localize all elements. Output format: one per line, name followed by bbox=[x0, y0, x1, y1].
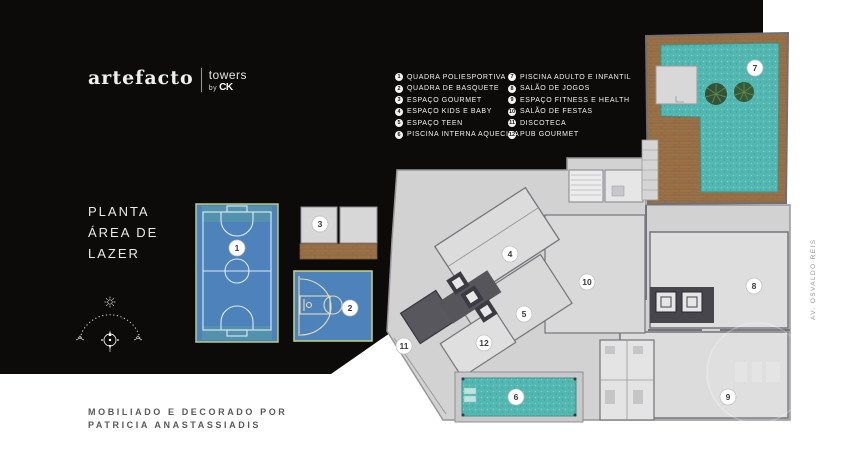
legend-item: 7PISCINA ADULTO E INFANTIL bbox=[508, 73, 631, 81]
pool-7-area bbox=[642, 33, 788, 204]
plan-marker-9: 9 bbox=[720, 389, 736, 405]
legend-item: 1QUADRA POLIESPORTIVA bbox=[395, 73, 519, 81]
plan-marker-4: 4 bbox=[502, 246, 518, 262]
legend-item: 3ESPAÇO GOURMET bbox=[395, 96, 519, 104]
legend-item: 8SALÃO DE JOGOS bbox=[508, 85, 631, 93]
legend-label: PISCINA INTERNA AQUECIDA bbox=[407, 131, 519, 138]
svg-text:2: 2 bbox=[348, 303, 353, 313]
legend-number-badge: 1 bbox=[395, 73, 403, 81]
legend-label: ESPAÇO FITNESS E HEALTH bbox=[520, 97, 630, 104]
svg-text:5: 5 bbox=[522, 309, 527, 319]
legend-item: 6PISCINA INTERNA AQUECIDA bbox=[395, 131, 519, 139]
legend-number-badge: 9 bbox=[508, 96, 516, 104]
designer-credit: MOBILIADO E DECORADO POR PATRICIA ANASTA… bbox=[88, 406, 287, 432]
plan-marker-1: 1 bbox=[229, 240, 245, 256]
ck-logo: CK bbox=[219, 82, 232, 93]
legend-item: 4ESPAÇO KIDS E BABY bbox=[395, 108, 519, 116]
legend-item: 12PUB GOURMET bbox=[508, 131, 631, 139]
brand-logo: artefacto towers byCK bbox=[88, 68, 247, 94]
legend-item: 2QUADRA DE BASQUETE bbox=[395, 85, 519, 93]
svg-text:7: 7 bbox=[753, 63, 758, 73]
plan-marker-11: 11 bbox=[396, 338, 412, 354]
legend-number-badge: 7 bbox=[508, 73, 516, 81]
brand-name: artefacto bbox=[88, 68, 194, 88]
legend-item: 11DISCOTECA bbox=[508, 119, 631, 127]
legend-label: SALÃO DE JOGOS bbox=[520, 85, 590, 92]
legend-label: ESPAÇO GOURMET bbox=[407, 97, 482, 104]
legend-item: 5ESPAÇO TEEN bbox=[395, 119, 519, 127]
plan-marker-3: 3 bbox=[312, 216, 328, 232]
legend-number-badge: 4 bbox=[395, 108, 403, 116]
plan-marker-12: 12 bbox=[476, 335, 492, 351]
svg-text:4: 4 bbox=[508, 249, 513, 259]
legend-label: QUADRA DE BASQUETE bbox=[407, 85, 499, 92]
pool-7-cabana bbox=[656, 66, 697, 104]
page-title: PLANTA ÁREA DE LAZER bbox=[88, 201, 158, 264]
legend-number-badge: 11 bbox=[508, 119, 516, 127]
legend-number-badge: 3 bbox=[395, 96, 403, 104]
svg-text:1: 1 bbox=[235, 243, 240, 253]
compass-rose-icon bbox=[72, 292, 150, 354]
svg-text:12: 12 bbox=[479, 338, 489, 348]
logo-divider bbox=[201, 68, 202, 92]
watermark bbox=[707, 323, 807, 423]
legend-number-badge: 5 bbox=[395, 119, 403, 127]
plan-marker-10: 10 bbox=[579, 274, 595, 290]
legend-number-badge: 8 bbox=[508, 85, 516, 93]
plan-marker-6: 6 bbox=[508, 389, 524, 405]
legend-column-1: 1QUADRA POLIESPORTIVA2QUADRA DE BASQUETE… bbox=[395, 73, 519, 139]
legend-item: 10SALÃO DE FESTAS bbox=[508, 108, 631, 116]
court-1-poliesportiva bbox=[196, 204, 278, 342]
legend-label: PISCINA ADULTO E INFANTIL bbox=[520, 74, 631, 81]
elevator-core-right bbox=[650, 287, 714, 323]
street-label: AV. OSVALDO REIS bbox=[810, 224, 817, 320]
svg-text:10: 10 bbox=[582, 277, 592, 287]
legend-number-badge: 12 bbox=[508, 131, 516, 139]
legend-number-badge: 2 bbox=[395, 85, 403, 93]
plan-marker-8: 8 bbox=[746, 278, 762, 294]
svg-text:9: 9 bbox=[726, 392, 731, 402]
legend-label: SALÃO DE FESTAS bbox=[520, 108, 593, 115]
court-2-basquete bbox=[294, 271, 372, 341]
brand-by: by bbox=[209, 85, 217, 92]
legend-label: PUB GOURMET bbox=[520, 131, 579, 138]
svg-text:11: 11 bbox=[400, 341, 409, 351]
svg-text:6: 6 bbox=[514, 392, 519, 402]
bathroom-block bbox=[600, 340, 654, 420]
room-salao-festas bbox=[545, 215, 645, 333]
legend-number-badge: 6 bbox=[395, 131, 403, 139]
plan-marker-5: 5 bbox=[516, 306, 532, 322]
legend-label: QUADRA POLIESPORTIVA bbox=[407, 74, 506, 81]
floor-plan-poster: 123456789101112 artefacto towers byCK PL… bbox=[0, 0, 850, 450]
palm-tree-icon bbox=[734, 82, 754, 102]
svg-text:8: 8 bbox=[752, 281, 757, 291]
legend-label: DISCOTECA bbox=[520, 120, 566, 127]
legend-number-badge: 10 bbox=[508, 108, 516, 116]
legend-label: ESPAÇO KIDS E BABY bbox=[407, 108, 492, 115]
brand-product: towers bbox=[209, 69, 247, 81]
stair-block bbox=[569, 170, 643, 202]
plan-marker-7: 7 bbox=[747, 60, 763, 76]
legend-column-2: 7PISCINA ADULTO E INFANTIL8SALÃO DE JOGO… bbox=[508, 73, 631, 139]
svg-text:3: 3 bbox=[318, 219, 323, 229]
palm-tree-icon bbox=[705, 83, 727, 105]
deck-stairs bbox=[642, 140, 658, 200]
legend-item: 9ESPAÇO FITNESS E HEALTH bbox=[508, 96, 631, 104]
legend-label: ESPAÇO TEEN bbox=[407, 120, 463, 127]
plan-marker-2: 2 bbox=[342, 300, 358, 316]
